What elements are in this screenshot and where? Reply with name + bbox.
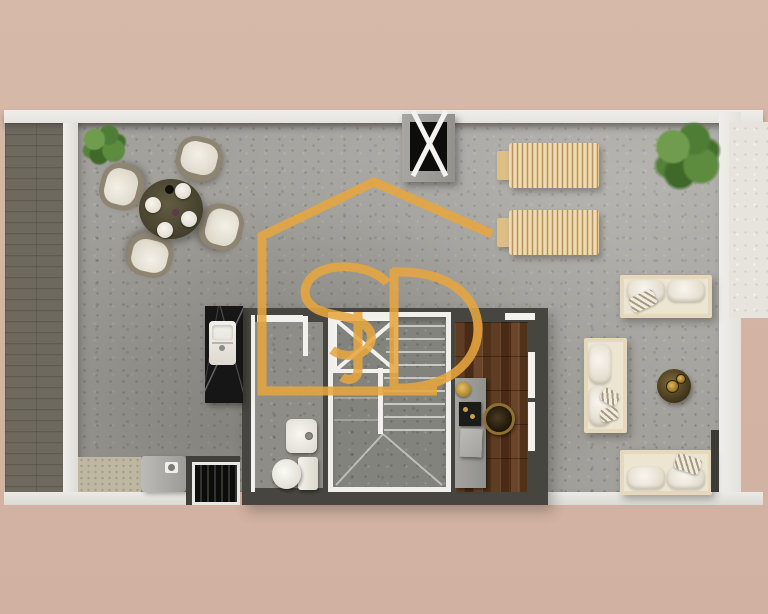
- bathroom-door-leaf: [303, 316, 308, 356]
- toilet-bowl: [272, 459, 301, 489]
- staircase-graphic: [328, 312, 451, 492]
- entry-door-opening-1: [528, 352, 535, 398]
- console-lower-box: [460, 429, 483, 458]
- left-balcony-tiled-floor: [5, 123, 63, 492]
- plate: [181, 211, 197, 227]
- round-basket: [483, 403, 515, 435]
- sofa-cushion: [667, 280, 705, 302]
- plate: [175, 183, 191, 199]
- bathroom-sink: [286, 419, 317, 453]
- wall-notch: [711, 430, 719, 492]
- bathroom-door-opening: [257, 315, 303, 322]
- shaft-x-icon: [402, 108, 455, 182]
- cutlery: [161, 198, 173, 207]
- stair-winders: [336, 434, 442, 485]
- floor-grate: [192, 462, 240, 505]
- gold-tray: [456, 382, 471, 397]
- plant-near-dining: [80, 124, 128, 168]
- plate: [145, 197, 161, 213]
- right-terrace-strip: [729, 122, 768, 318]
- stair-divider: [378, 368, 383, 434]
- sofa-cushion: [627, 467, 665, 489]
- stair-treads: [384, 326, 445, 430]
- console-decor-box: [459, 402, 481, 426]
- sofa-cushion: [589, 344, 611, 384]
- gold-decor-dot: [463, 407, 468, 412]
- faucet-icon: [219, 345, 225, 351]
- entry-door-opening-2: [528, 402, 535, 451]
- bottle: [165, 185, 174, 194]
- washer-dial: [168, 464, 175, 471]
- dining-table: [139, 179, 203, 239]
- coffee-table: [657, 369, 691, 403]
- flower-sprig: [172, 209, 179, 216]
- gold-vessel: [676, 374, 686, 384]
- entry-top-opening: [505, 313, 535, 320]
- plant-top-right: [652, 120, 722, 196]
- sink-basin: [212, 325, 233, 340]
- plate: [157, 222, 173, 238]
- sofa-top: [620, 275, 712, 318]
- sun-lounger-1: [509, 143, 599, 188]
- left-interior-wall: [63, 123, 78, 492]
- floor-plan-render: SD: [0, 0, 768, 614]
- utility-mat: [78, 457, 141, 492]
- washing-machine: [141, 456, 186, 492]
- stair-landing-lines: [334, 398, 378, 420]
- top-exterior-wall: [4, 110, 763, 123]
- sofa-vertical: [584, 338, 627, 433]
- kitchen-sink: [209, 321, 236, 365]
- kitchen-marble-counter: [205, 306, 243, 403]
- sofa-bottom: [620, 450, 712, 495]
- sun-lounger-2: [509, 210, 599, 255]
- sink-divider: [212, 342, 233, 344]
- gold-decor-dot: [470, 414, 475, 419]
- toilet-tank: [298, 457, 318, 490]
- faucet-icon: [305, 432, 313, 440]
- bottom-wall-left: [4, 492, 188, 505]
